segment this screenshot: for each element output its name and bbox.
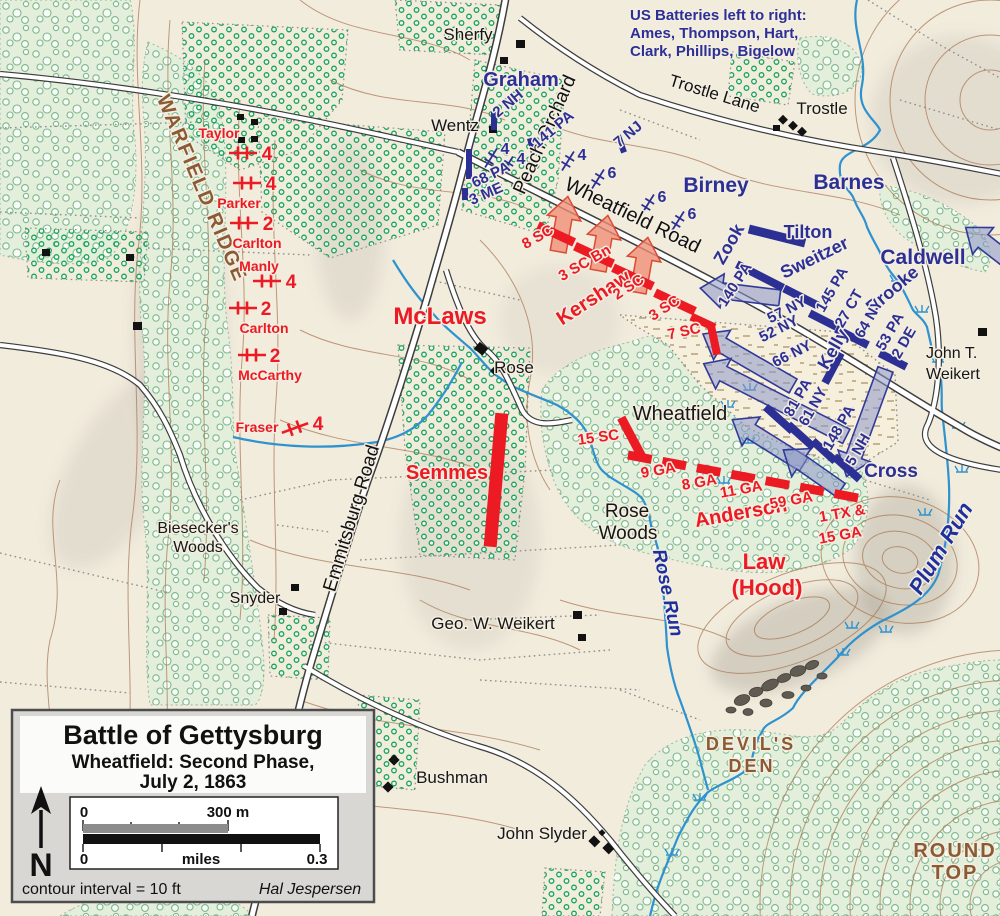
john-slyder-label: John Slyder [497, 824, 587, 843]
devils-den-label-1: DEVIL'S [706, 734, 796, 754]
manly-label: Manly [239, 258, 279, 274]
bieseckers-woods-label-1: Biesecker's [157, 520, 238, 537]
sherfy-label: Sherfy [443, 25, 493, 44]
battery-num-1: 4 [501, 141, 510, 158]
north-label: N [29, 847, 52, 883]
note-line3: Clark, Phillips, Bigelow [630, 43, 795, 60]
legend-title: Battle of Gettysburg [63, 720, 323, 750]
john-t-weikert-label-1: John T. [926, 345, 977, 362]
trostle-label: Trostle [796, 99, 847, 118]
rose-label: Rose [494, 358, 534, 377]
parker-label: Parker [217, 195, 261, 211]
map-canvas: US Batteries left to right: Ames, Thomps… [0, 0, 1000, 916]
credit: Hal Jespersen [259, 881, 361, 898]
snyder-label: Snyder [230, 590, 281, 607]
battery-num-4: 6 [608, 165, 617, 182]
rose-woods-label-1: Rose [605, 501, 649, 522]
legend-subtitle-1: Wheatfield: Second Phase, [72, 752, 315, 773]
scale-03mi: 0.3 [307, 851, 328, 868]
geo-w-weikert-label: Geo. W. Weikert [431, 614, 555, 633]
mclaws-label: McLaws [393, 303, 486, 330]
scale-bar-miles [83, 834, 320, 844]
scale-bar-meters [83, 824, 228, 833]
woods-left-top [0, 0, 136, 264]
carlton2-label: Carlton [240, 320, 289, 336]
scale-miles-label: miles [182, 851, 220, 868]
graham-label: Graham [483, 69, 559, 91]
round-top-label-1: ROUND [913, 840, 996, 862]
cross-label: Cross [864, 461, 918, 482]
scale-0mi: 0 [80, 851, 88, 868]
bushman-label: Bushman [416, 768, 488, 787]
birney-label: Birney [683, 174, 749, 197]
battery-num-2: 4 [517, 151, 526, 168]
fraser-label: Fraser [236, 419, 279, 435]
devils-den-label-2: DEN [728, 756, 775, 776]
wheatfield-label: Wheatfield [633, 403, 728, 425]
red-battery-num-4: 4 [286, 272, 297, 293]
red-battery-num-1: 4 [262, 144, 273, 165]
note-line2: Ames, Thompson, Hart, [630, 25, 798, 42]
barnes-label: Barnes [813, 171, 884, 194]
scale-bar: 0 300 m 0 miles 0.3 [70, 797, 338, 869]
red-battery-num-2: 4 [266, 174, 277, 195]
note-line1: US Batteries left to right: [630, 7, 807, 24]
bieseckers-woods-label-2: Woods [173, 539, 223, 556]
red-battery-num-5: 2 [261, 299, 272, 320]
wentz-label: Wentz [431, 116, 479, 135]
tilton-label: Tilton [784, 222, 833, 242]
law-label-2: (Hood) [732, 575, 803, 600]
battery-num-3: 4 [578, 147, 587, 164]
legend-box: Battle of Gettysburg Wheatfield: Second … [12, 710, 374, 902]
round-top-label-2: TOP [932, 862, 979, 884]
scale-300m: 300 m [207, 804, 250, 821]
scale-0m: 0 [80, 804, 88, 821]
orchard-slyder [542, 868, 605, 916]
caldwell-label: Caldwell [880, 246, 965, 269]
legend-subtitle-2: July 2, 1863 [140, 772, 247, 793]
semmes-label: Semmes [406, 462, 488, 484]
contour-interval-note: contour interval = 10 ft [22, 881, 181, 898]
law-label-1: Law [743, 549, 787, 574]
battery-num-5: 6 [658, 189, 667, 206]
battery-num-6: 6 [688, 206, 697, 223]
red-battery-num-3: 2 [263, 214, 274, 235]
john-t-weikert-label-2: Weikert [926, 366, 980, 383]
taylor-label: Taylor [199, 125, 241, 141]
carlton1-label: Carlton [233, 235, 282, 251]
mccarthy-label: McCarthy [238, 367, 302, 383]
red-battery-num-6: 2 [270, 346, 281, 367]
gettysburg-wheatfield-map: US Batteries left to right: Ames, Thomps… [0, 0, 1000, 916]
red-battery-num-7: 4 [313, 414, 324, 435]
rose-woods-label-2: Woods [599, 523, 658, 544]
